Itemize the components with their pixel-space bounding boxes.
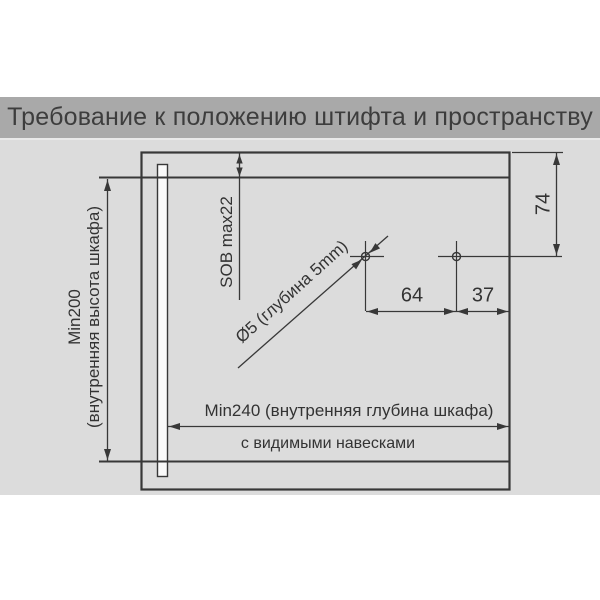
visible-hinges-note: с видимыми навесками <box>241 435 415 453</box>
dim-label-64: 64 <box>401 285 423 308</box>
dim-label-inner-height-value: Min200 <box>65 206 84 428</box>
pin-position-requirement-diagram: Требование к положению штифта и простран… <box>0 0 600 600</box>
dim-label-74: 74 <box>533 193 556 215</box>
hang-rail-strip <box>158 165 168 477</box>
dim-label-inner-depth: Min240 (внутренняя глубина шкафа) <box>205 401 494 421</box>
dim-label-sob: SOB max22 <box>217 196 237 288</box>
dim-label-inner-height-desc: (внутренняя высота шкафа) <box>84 206 103 428</box>
dim-label-inner-height: Min200 (внутренняя высота шкафа) <box>65 206 103 428</box>
dim-label-37: 37 <box>472 285 494 308</box>
